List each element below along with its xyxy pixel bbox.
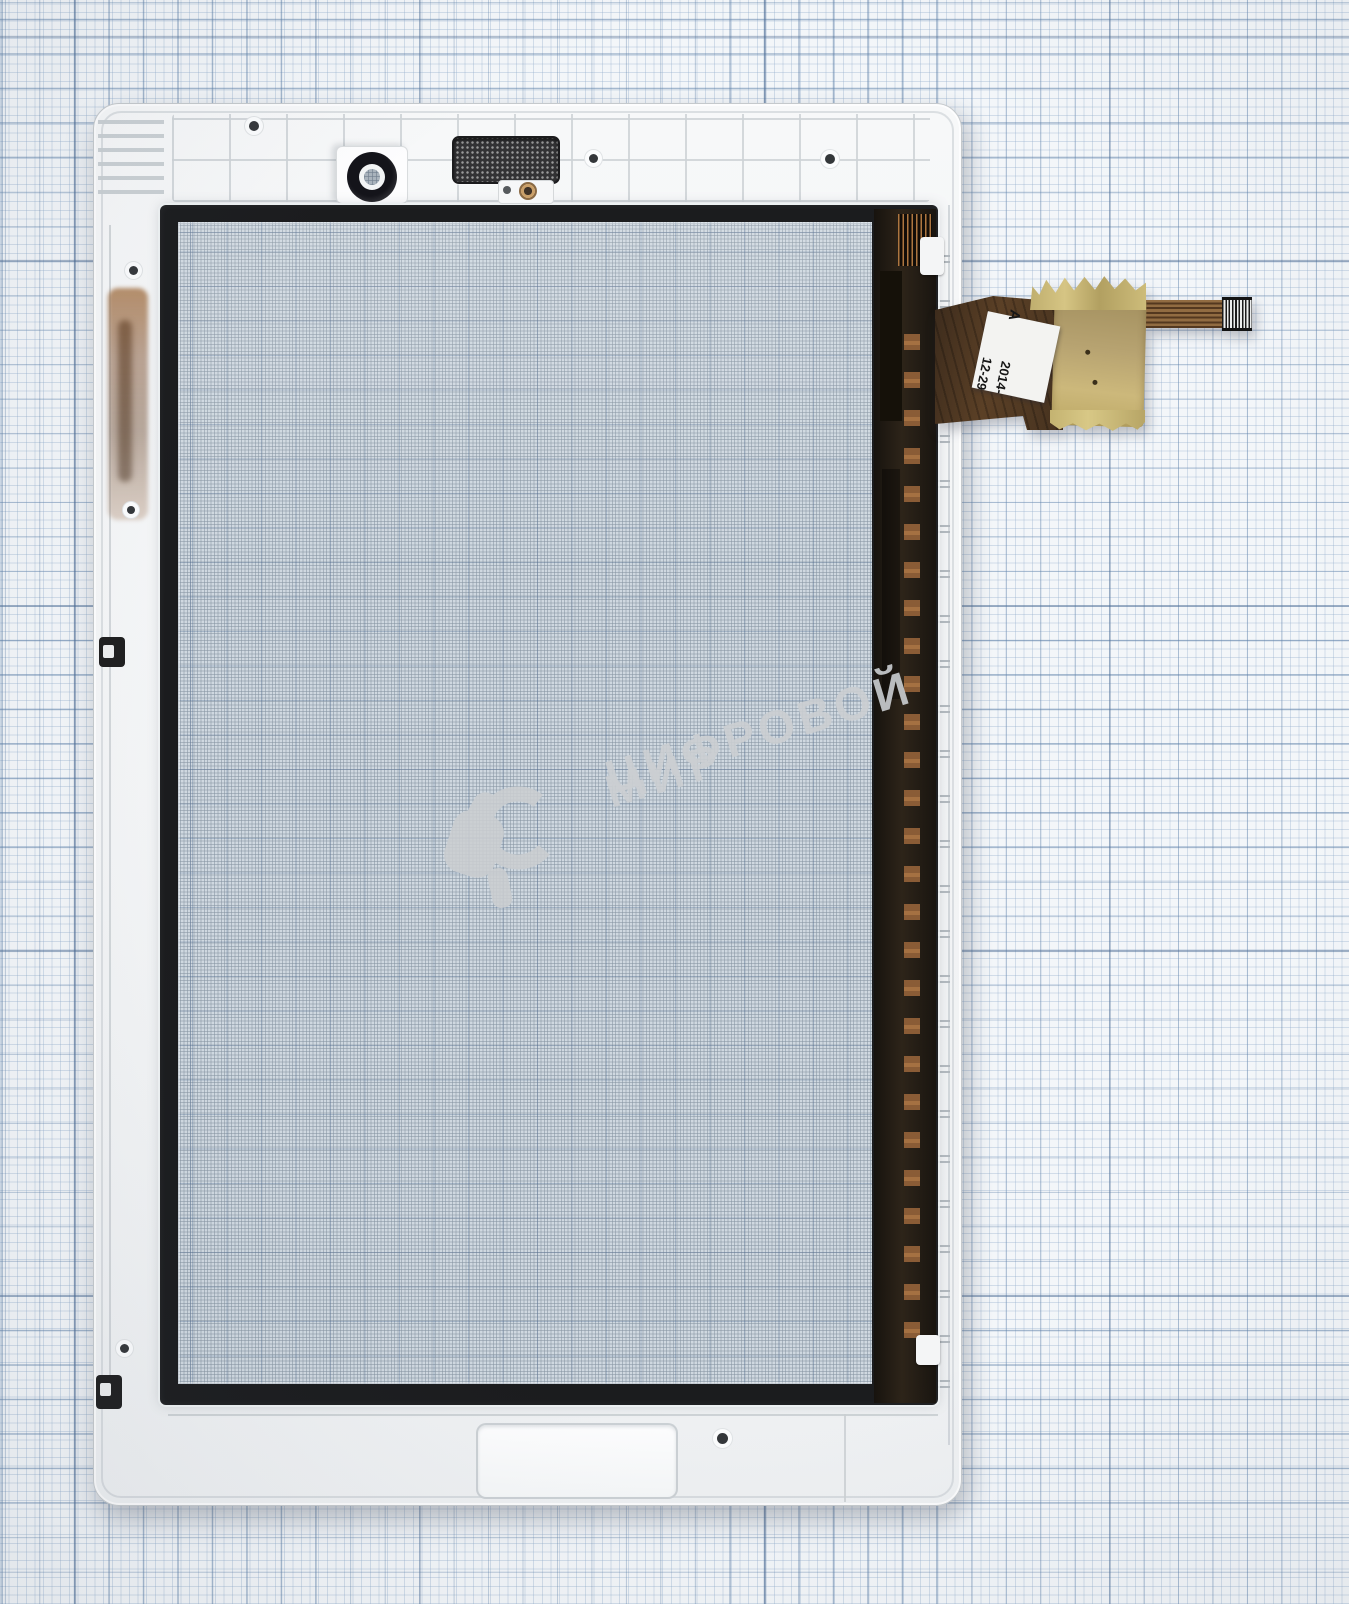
tape-dot [1092, 380, 1097, 385]
date-label-text: 2014-12-29 A [1006, 312, 1025, 402]
ribbon-connector-fingers [1222, 297, 1252, 331]
screw-hole [127, 506, 135, 514]
gold-foil-tape [1030, 274, 1146, 310]
screw-hole [825, 154, 835, 164]
notch-tab [100, 1383, 111, 1396]
speaker-contact-screw [519, 182, 537, 200]
flex-tail-strip [874, 209, 936, 1403]
speaker-grille [452, 136, 560, 184]
date-label: 2014-12-29 A [972, 311, 1061, 403]
product-photo: 2014-12-29 A ЦИФРОВОЙ МИР [0, 0, 1349, 1604]
gold-foil-tape-bottom [1050, 410, 1145, 432]
frame-bottom-seam [844, 1414, 846, 1502]
flex-cable-assembly: 2014-12-29 A [930, 270, 1252, 438]
notch-tab [103, 645, 114, 658]
ribbon-cable [1142, 300, 1224, 328]
frame-bottom-mold-line [168, 1414, 938, 1416]
strip-white-tab [916, 1335, 940, 1365]
touch-glass-sensor-mesh [178, 222, 872, 1384]
screw-hole [717, 1433, 728, 1444]
kapton-tape-patch [1051, 297, 1146, 427]
date-label-date: 2014-12-29 [970, 349, 1016, 402]
frame-left-notch [96, 1375, 122, 1409]
screw-hole [129, 266, 138, 275]
adhesive-stain-core [118, 320, 132, 482]
copper-contact-dashes [904, 334, 920, 1344]
screw-hole [249, 121, 259, 131]
frame-left-notch [99, 637, 125, 667]
speaker-contact-dot [503, 186, 511, 194]
strip-dark-block [880, 271, 902, 421]
frame-topleft-ribs [98, 118, 164, 194]
frame-bottom-recess [476, 1423, 678, 1499]
camera-lens-hole [364, 169, 380, 185]
tape-dot [1085, 350, 1090, 355]
strip-dark-block [882, 469, 900, 699]
screw-hole [120, 1344, 129, 1353]
screw-hole [589, 154, 598, 163]
